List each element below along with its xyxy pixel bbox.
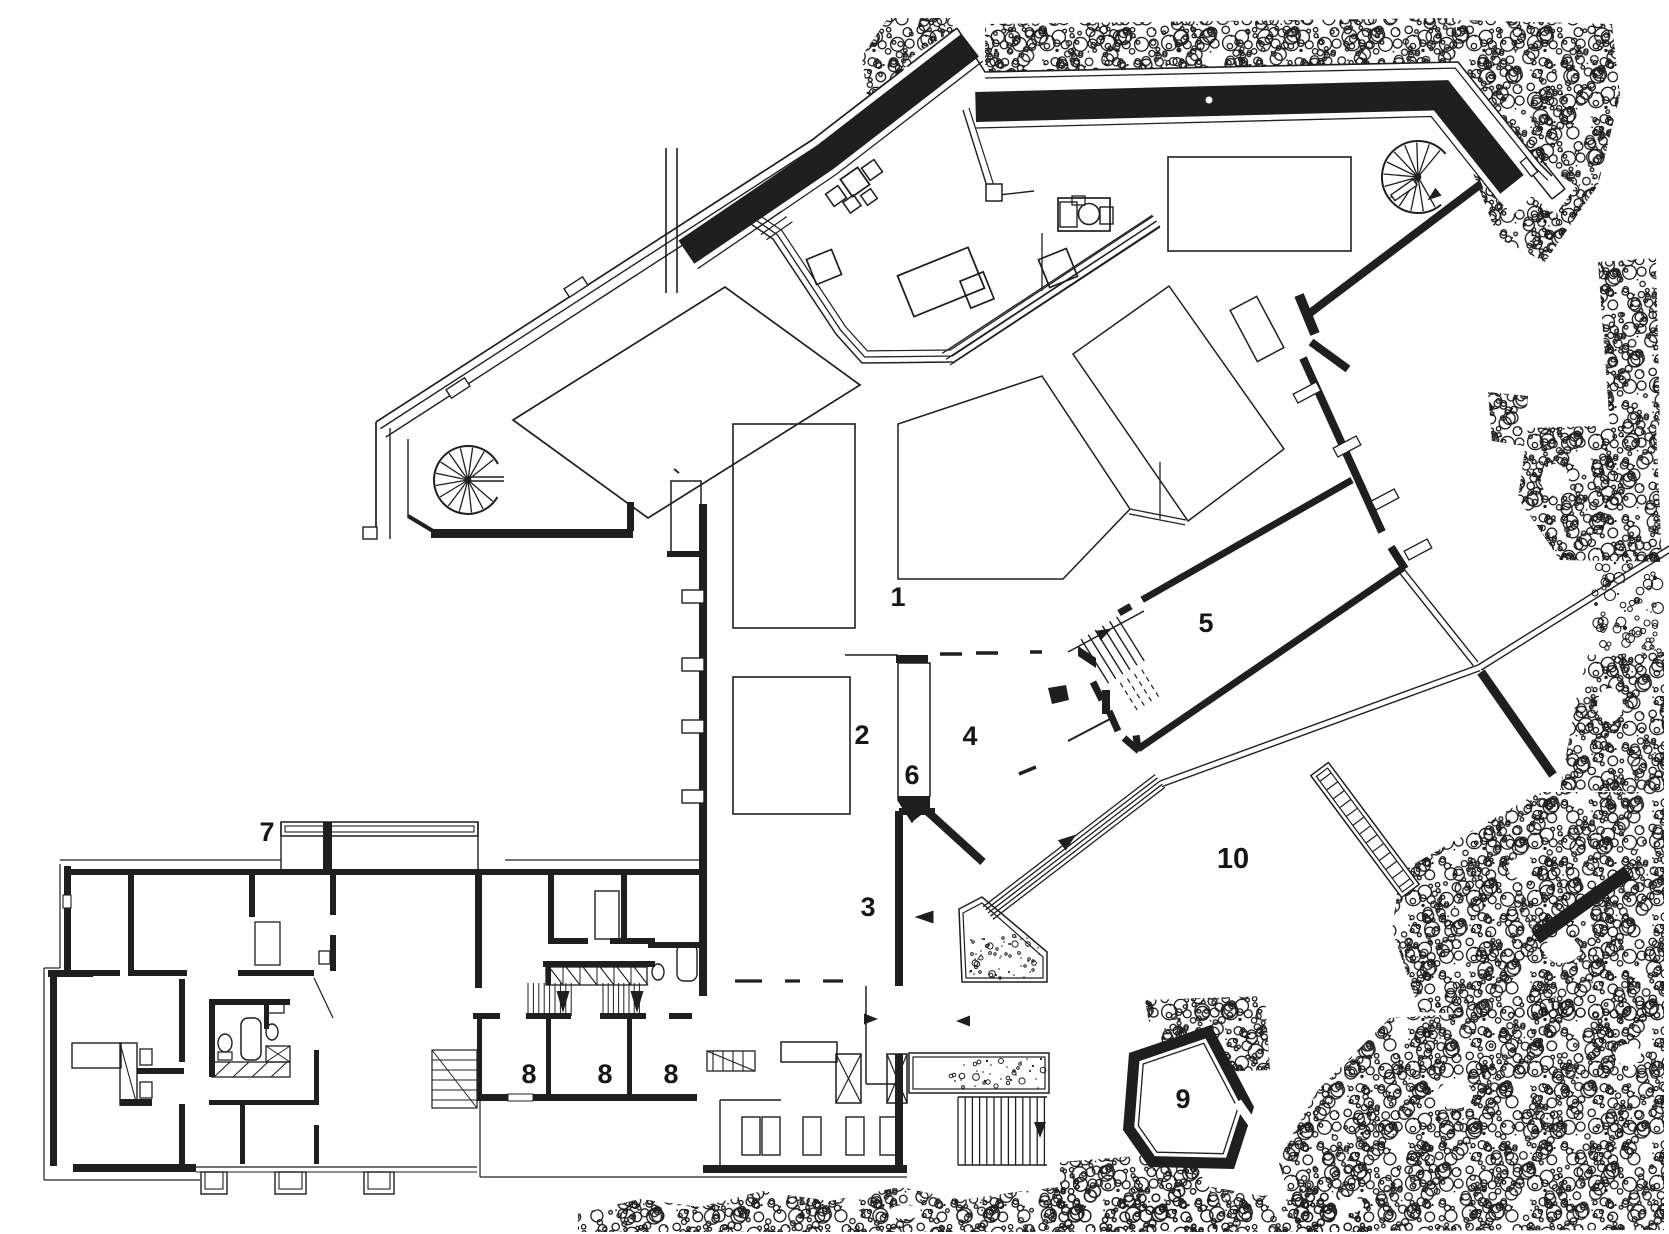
svg-text:8: 8: [663, 1059, 678, 1089]
svg-text:1: 1: [890, 582, 905, 612]
svg-text:7: 7: [259, 817, 274, 847]
svg-text:9: 9: [1175, 1084, 1190, 1114]
svg-text:2: 2: [854, 720, 869, 750]
svg-text:8: 8: [597, 1059, 612, 1089]
svg-text:3: 3: [860, 892, 875, 922]
svg-text:10: 10: [1217, 843, 1249, 875]
svg-text:8: 8: [521, 1059, 536, 1089]
svg-text:4: 4: [962, 721, 977, 751]
svg-text:5: 5: [1198, 608, 1213, 638]
svg-text:6: 6: [904, 760, 919, 790]
